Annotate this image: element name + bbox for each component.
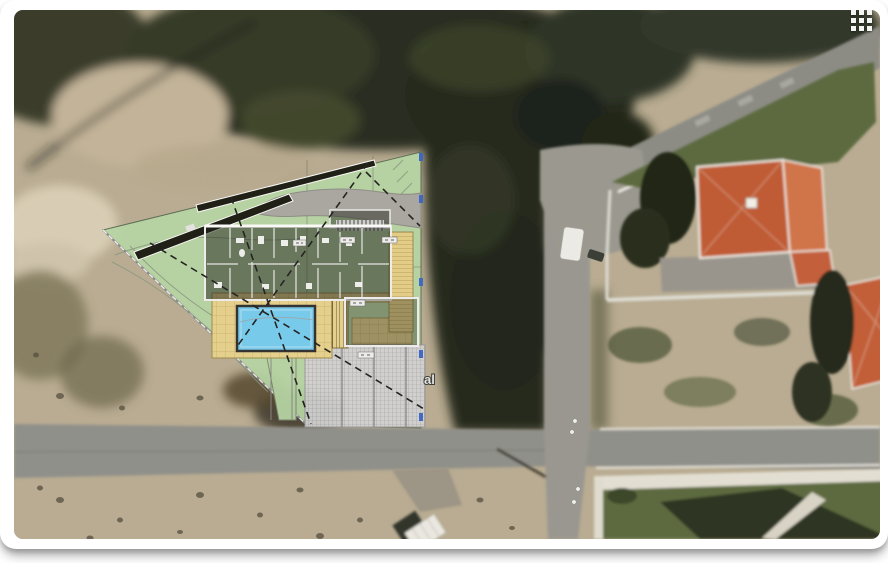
- street-label-fragment: al: [424, 372, 435, 387]
- house-roof: [697, 160, 790, 258]
- corner-plot: [594, 469, 880, 539]
- screenshot-stage: al: [0, 0, 888, 563]
- map-canvas[interactable]: al: [14, 10, 880, 539]
- satellite-map: al: [14, 10, 880, 539]
- main-wing: [205, 226, 391, 300]
- swimming-pool: [237, 306, 315, 351]
- white-van: [560, 227, 584, 261]
- curb-left: [594, 476, 603, 539]
- photo-frame: al: [0, 0, 888, 549]
- chimney: [746, 198, 757, 208]
- apps-grid-icon[interactable]: [851, 10, 872, 31]
